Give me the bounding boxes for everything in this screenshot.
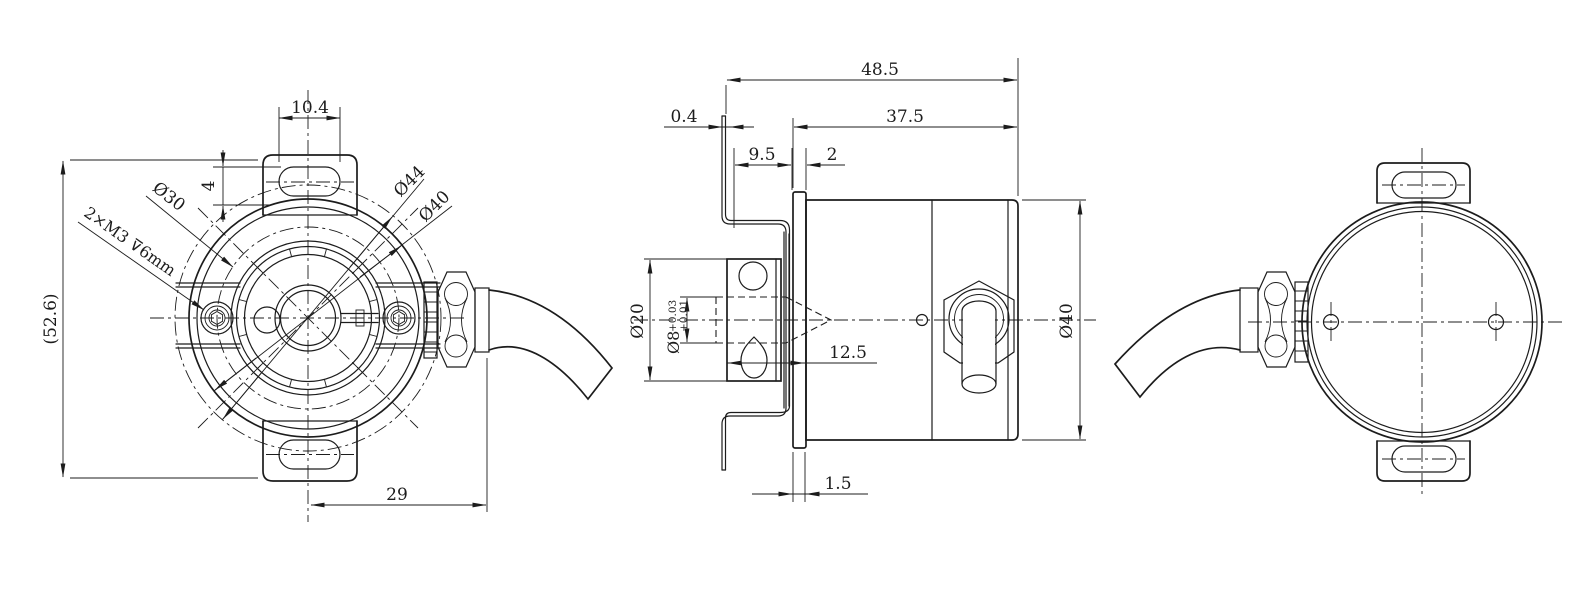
dim-bracket-thickness-label: 0.4 [670,107,697,127]
dim-hub-dia-label: Ø20 [628,303,648,339]
dim-overall-length-label: 48.5 [861,60,899,80]
dim-clamp-step-label: 2 [827,145,838,165]
dim-cable-axis-offset-label: 29 [386,485,408,505]
dim-tab-offset-label: 4 [199,181,219,192]
dim-hub-depth-label: 12.5 [829,343,867,363]
dim-clamp-disc-thickness-label: 1.5 [824,474,851,494]
drawing-background [0,0,1590,589]
dim-overall-height-label: (52.6) [41,293,61,344]
dim-shaft-tol-lower: +0.01 [678,300,690,332]
dim-shaft-dia-label: Ø8 [664,331,683,354]
dim-side-body-dia-label: Ø40 [1057,303,1077,339]
technical-drawing-canvas: 10.4 4 (52.6) 29 Ø30 [0,0,1590,589]
dim-slot-width-label: 10.4 [291,98,329,118]
dim-hub-length-label: 9.5 [748,145,775,165]
dim-body-length-label: 37.5 [886,107,924,127]
